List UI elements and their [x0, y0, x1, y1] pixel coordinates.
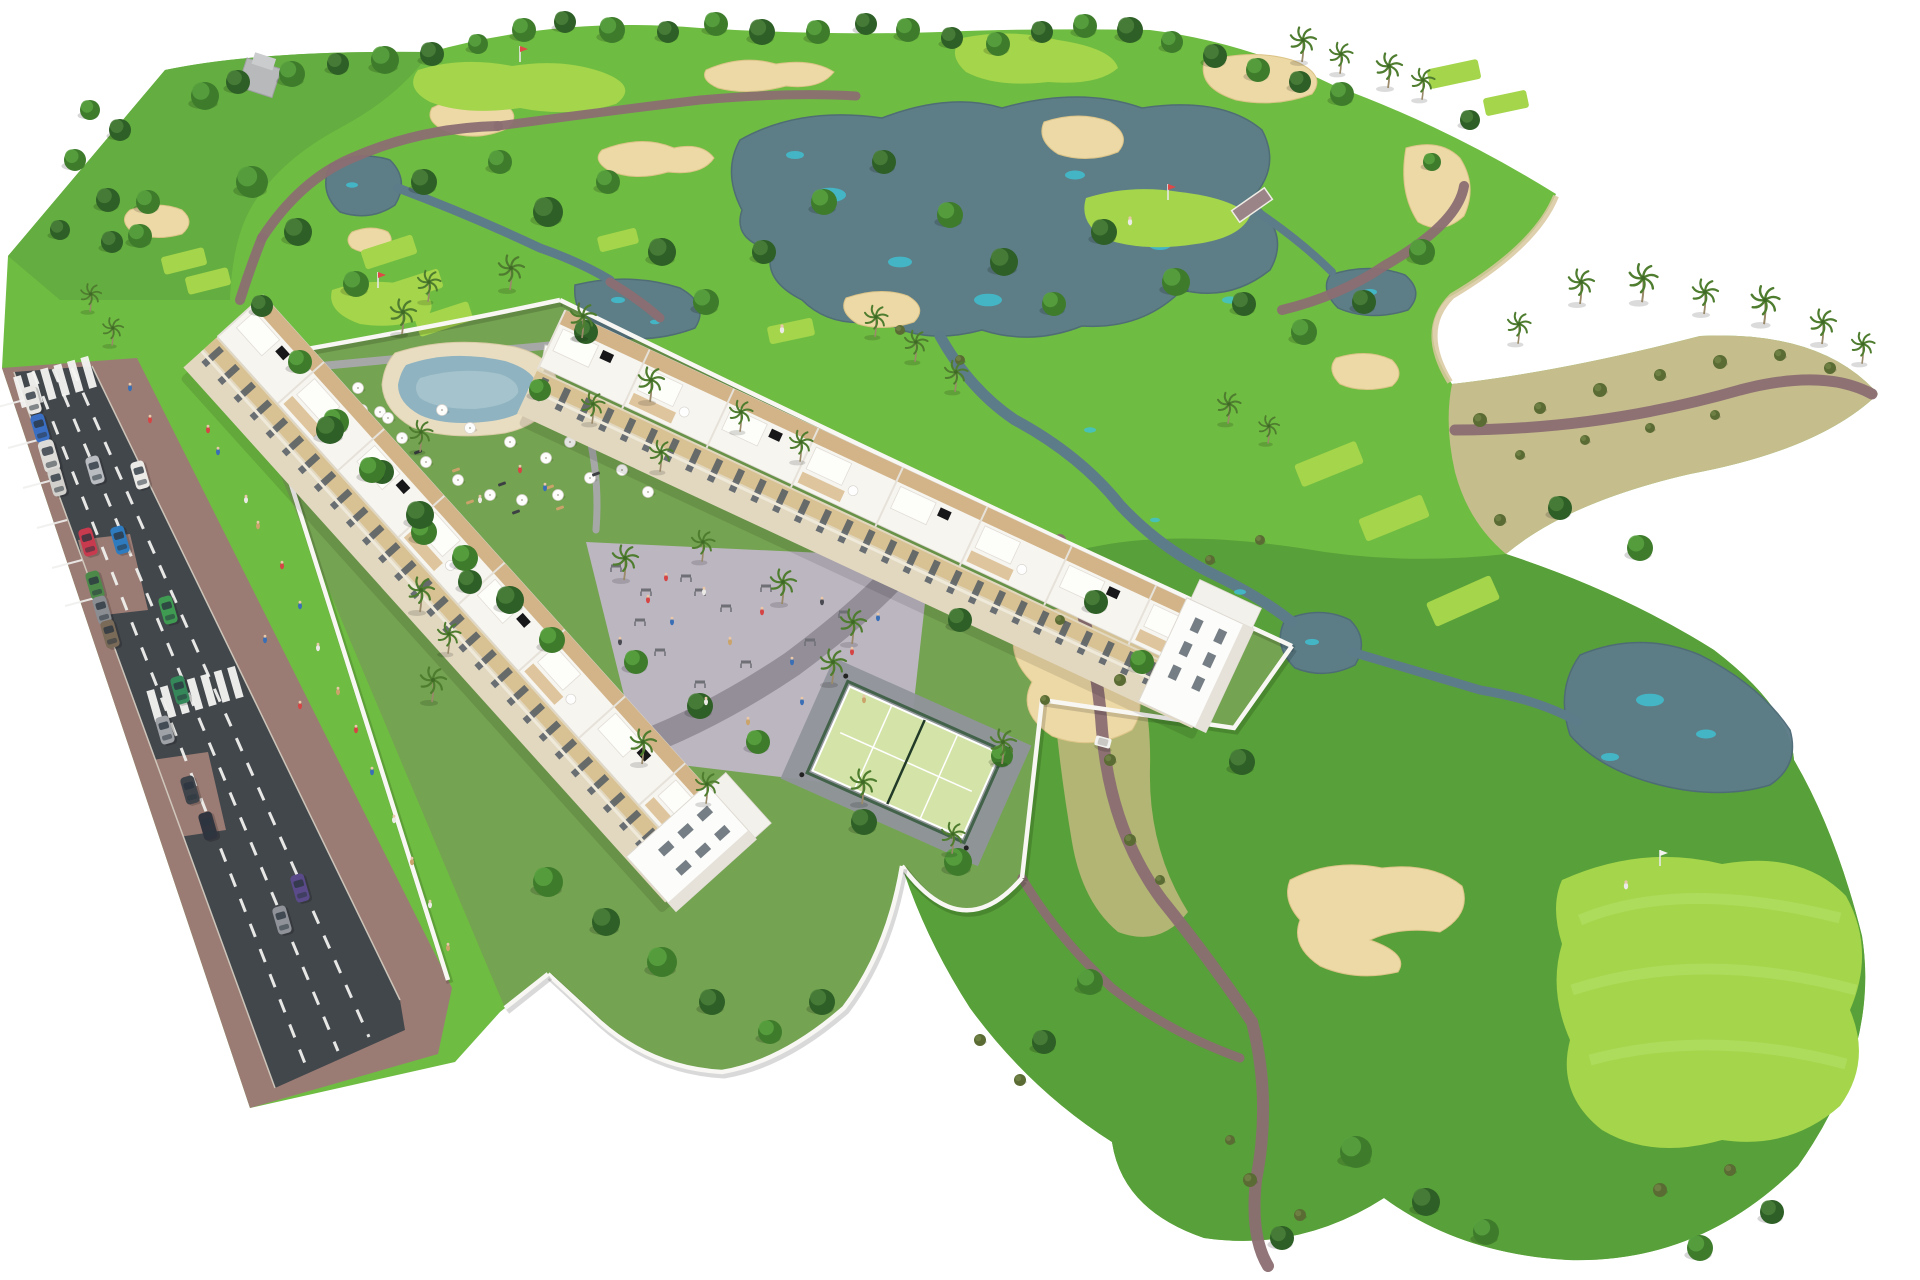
- palm-tree: [1376, 53, 1402, 92]
- palm-tree: [1629, 264, 1658, 307]
- palm-tree: [1507, 313, 1530, 348]
- water-highlight: [974, 294, 1002, 307]
- masterplan-aerial-render: [0, 0, 1920, 1280]
- sand-bunker: [1332, 353, 1399, 389]
- water-highlight: [1601, 753, 1619, 761]
- water-highlight: [1234, 589, 1246, 594]
- water-highlight: [1084, 427, 1096, 432]
- water-highlight: [1305, 639, 1319, 645]
- palm-tree: [1810, 309, 1836, 348]
- golfer: [780, 324, 784, 333]
- water-highlight: [611, 297, 625, 303]
- palm-tree: [1290, 27, 1316, 66]
- palm-tree: [1751, 286, 1780, 329]
- water-highlight: [786, 151, 804, 159]
- golfer: [1624, 880, 1628, 889]
- putting-green: [413, 62, 625, 112]
- water-highlight: [1065, 171, 1085, 180]
- water-highlight: [1696, 730, 1716, 739]
- palm-tree: [1568, 269, 1594, 308]
- pool-sheen: [416, 371, 518, 409]
- tee-box: [1426, 59, 1481, 89]
- water-highlight: [888, 257, 912, 268]
- golfer: [1128, 216, 1132, 225]
- palm-tree: [1692, 279, 1718, 318]
- water-highlight: [1636, 694, 1664, 707]
- palm-tree: [1851, 333, 1874, 368]
- sand-bunker: [844, 291, 920, 327]
- scrub-band: [1449, 335, 1878, 554]
- water-highlight: [346, 182, 358, 187]
- tee-box: [1483, 90, 1530, 117]
- water-highlight: [1150, 518, 1160, 523]
- render-viewport: [0, 0, 1920, 1280]
- palm-tree: [1329, 43, 1352, 78]
